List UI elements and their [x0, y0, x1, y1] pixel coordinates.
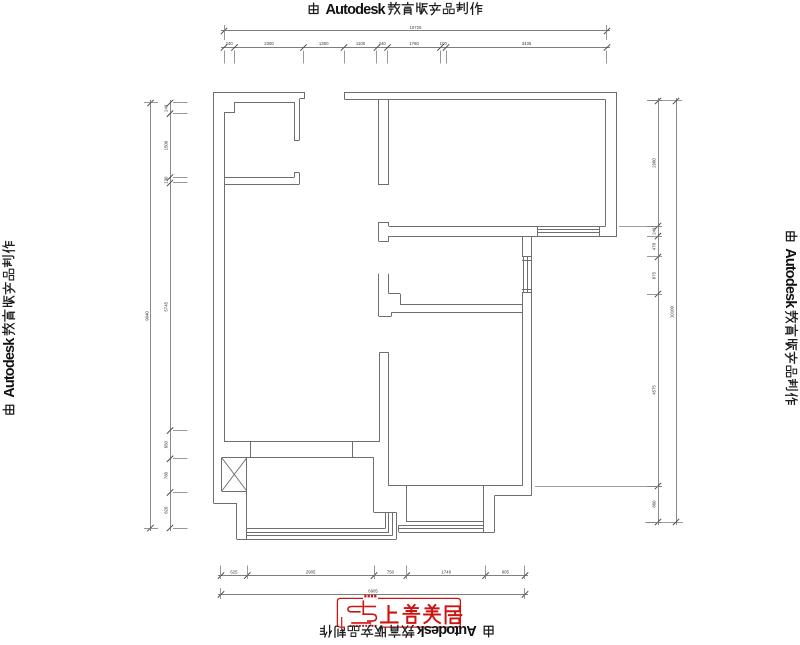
svg-text:5745: 5745 [163, 301, 168, 311]
svg-text:1100: 1100 [356, 41, 366, 46]
svg-text:Autodesk: Autodesk [782, 248, 798, 309]
svg-text:1350: 1350 [319, 41, 329, 46]
svg-text:2980: 2980 [652, 158, 657, 168]
svg-text:1760: 1760 [409, 41, 419, 46]
svg-text:3435: 3435 [522, 41, 532, 46]
svg-text:240: 240 [652, 227, 657, 235]
svg-text:875: 875 [652, 271, 657, 279]
svg-text:1500: 1500 [163, 140, 168, 150]
svg-text:100: 100 [440, 41, 448, 46]
svg-text:820: 820 [163, 506, 168, 514]
svg-text:10100: 10100 [670, 305, 675, 318]
svg-text:240: 240 [163, 104, 168, 112]
svg-text:4575: 4575 [652, 385, 657, 395]
svg-text:130: 130 [163, 176, 168, 184]
svg-text:2300: 2300 [264, 41, 274, 46]
svg-text:860: 860 [652, 500, 657, 508]
svg-text:Autodesk: Autodesk [2, 337, 18, 398]
svg-text:9040: 9040 [145, 311, 150, 321]
svg-text:Autodesk: Autodesk [326, 2, 387, 18]
svg-text:Autodesk: Autodesk [416, 622, 477, 638]
svg-text:1748: 1748 [441, 569, 451, 574]
svg-text:240: 240 [379, 41, 387, 46]
svg-text:780: 780 [163, 471, 168, 479]
svg-text:905: 905 [502, 569, 510, 574]
svg-text:6905: 6905 [368, 589, 378, 594]
svg-text:750: 750 [387, 569, 395, 574]
svg-text:650: 650 [163, 441, 168, 449]
svg-text:478: 478 [652, 242, 657, 250]
svg-text:2905: 2905 [306, 569, 316, 574]
svg-text:10725: 10725 [410, 25, 423, 30]
svg-text:240: 240 [226, 41, 234, 46]
svg-text:625: 625 [230, 569, 238, 574]
